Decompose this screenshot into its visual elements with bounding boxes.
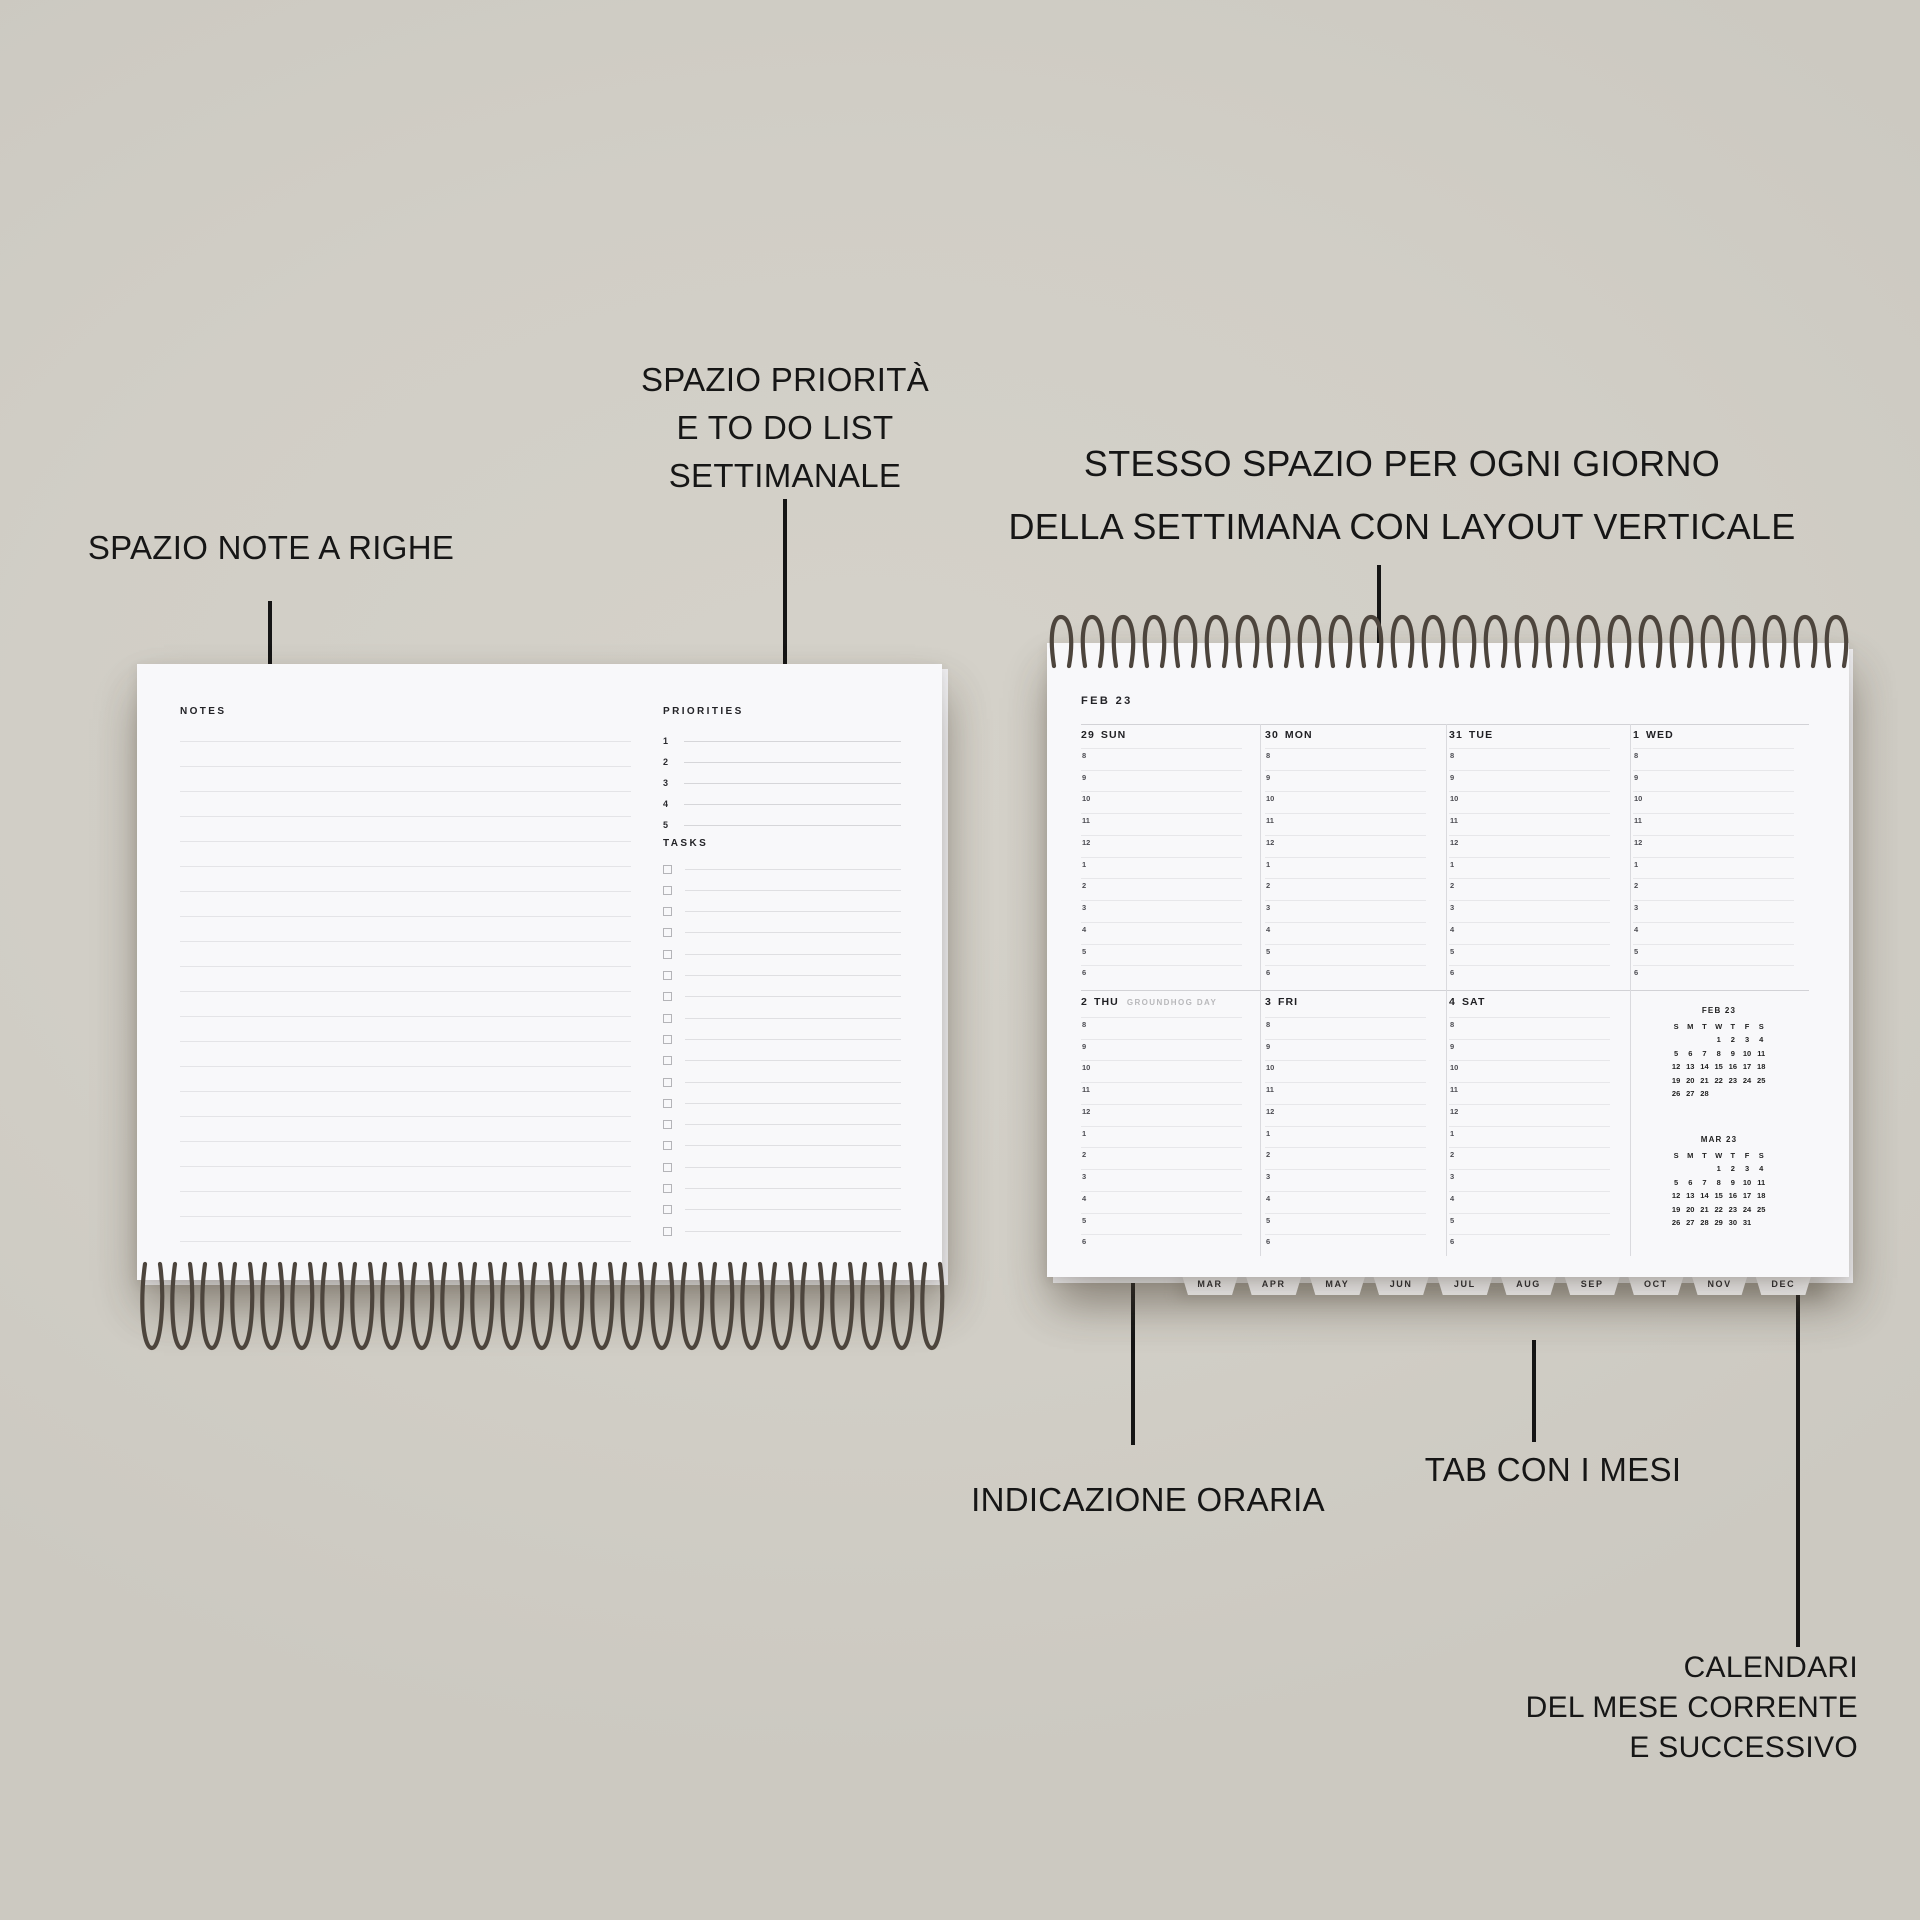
hour-cell: 3 — [1449, 900, 1610, 922]
annotation-calendars: CALENDARI DEL MESE CORRENTE E SUCCESSIVO — [1526, 1648, 1858, 1768]
mini-calendar-day: 5 — [1669, 1047, 1683, 1060]
mini-calendar-day — [1754, 1216, 1768, 1229]
mini-calendar-title: FEB 23 — [1669, 1006, 1769, 1015]
mini-calendar-day: 17 — [1740, 1060, 1754, 1073]
note-line — [180, 1016, 631, 1017]
day-header: 3FRI — [1265, 996, 1298, 1008]
hour-cell: 12 — [1265, 835, 1426, 857]
hour-cell: 3 — [1449, 1169, 1610, 1191]
notepad-page: NOTES PRIORITIES 12345 TASKS — [137, 664, 942, 1280]
mini-calendar-dow: S — [1669, 1149, 1683, 1162]
annotation-priorities-line2: E TO DO LIST — [641, 404, 929, 452]
note-line — [180, 1241, 631, 1242]
hour-cell: 9 — [1265, 1039, 1426, 1061]
hour-cell: 4 — [1081, 922, 1242, 944]
day-name: SAT — [1462, 996, 1486, 1008]
mini-calendar-grid: SMTWTFS123456789101112131415161718192021… — [1669, 1020, 1769, 1100]
task-line — [685, 911, 901, 912]
task-row — [663, 863, 901, 875]
hour-cell: 1 — [1265, 857, 1426, 879]
mini-calendar-day: 27 — [1683, 1216, 1697, 1229]
hour-cell: 3 — [1265, 1169, 1426, 1191]
mini-calendar-day: 9 — [1726, 1047, 1740, 1060]
task-line — [685, 1060, 901, 1061]
hour-cell: 8 — [1633, 748, 1794, 770]
hour-cell: 3 — [1633, 900, 1794, 922]
mini-calendar-dow: T — [1697, 1020, 1711, 1033]
hour-cell: 8 — [1081, 1017, 1242, 1039]
hour-cell: 6 — [1449, 1234, 1610, 1256]
annotation-vertical-layout-line2: DELLA SETTIMANA CON LAYOUT VERTICALE — [1008, 495, 1795, 558]
mini-calendar-day: 11 — [1754, 1047, 1768, 1060]
task-checkbox — [663, 1035, 672, 1044]
mini-calendar-day — [1683, 1162, 1697, 1175]
mini-calendar-day — [1754, 1087, 1768, 1100]
task-checkbox — [663, 1056, 672, 1065]
note-line — [180, 941, 631, 942]
hour-cell: 9 — [1449, 770, 1610, 792]
note-line — [180, 1116, 631, 1117]
note-line — [180, 1041, 631, 1042]
hour-cell: 12 — [1633, 835, 1794, 857]
mini-calendar-day: 4 — [1754, 1162, 1768, 1175]
task-row — [663, 1225, 901, 1237]
note-line — [180, 841, 631, 842]
mini-calendar-dow: M — [1683, 1020, 1697, 1033]
hour-cell: 2 — [1633, 878, 1794, 900]
mini-calendar-day: 28 — [1697, 1216, 1711, 1229]
mini-calendar-day: 24 — [1740, 1203, 1754, 1216]
mini-calendar-day: 12 — [1669, 1189, 1683, 1202]
column-divider-3 — [1630, 724, 1631, 1256]
hour-cell: 2 — [1265, 878, 1426, 900]
hour-cell: 4 — [1265, 922, 1426, 944]
hour-cell: 8 — [1449, 748, 1610, 770]
hour-grid: 89101112123456 — [1633, 748, 1794, 987]
day-header: 1WED — [1633, 729, 1674, 741]
mini-calendar-day — [1726, 1087, 1740, 1100]
hour-cell: 5 — [1081, 1213, 1242, 1235]
mini-calendar-day: 25 — [1754, 1203, 1768, 1216]
day-header: 2THUGROUNDHOG DAY — [1081, 996, 1217, 1008]
hour-cell: 2 — [1081, 878, 1242, 900]
hour-cell: 1 — [1449, 857, 1610, 879]
task-checkbox — [663, 971, 672, 980]
task-row — [663, 970, 901, 982]
mini-calendar-dow: S — [1669, 1020, 1683, 1033]
annotation-calendars-line1: CALENDARI — [1526, 1648, 1858, 1688]
mini-calendar-dow: F — [1740, 1020, 1754, 1033]
mini-calendar-day: 26 — [1669, 1087, 1683, 1100]
annotation-vertical-layout: STESSO SPAZIO PER OGNI GIORNO DELLA SETT… — [1008, 432, 1795, 558]
task-line — [685, 1231, 901, 1232]
hour-cell: 5 — [1265, 944, 1426, 966]
day-name: THU — [1094, 996, 1119, 1008]
task-checkbox — [663, 928, 672, 937]
note-line — [180, 966, 631, 967]
mini-calendar-day: 8 — [1712, 1176, 1726, 1189]
hour-grid: 89101112123456 — [1265, 1017, 1426, 1256]
mini-calendar-day: 17 — [1740, 1189, 1754, 1202]
task-row — [663, 991, 901, 1003]
task-checkbox — [663, 992, 672, 1001]
mini-calendar-dow: T — [1726, 1149, 1740, 1162]
hour-cell: 10 — [1265, 1060, 1426, 1082]
mini-calendar-day: 18 — [1754, 1189, 1768, 1202]
hour-cell: 10 — [1081, 791, 1242, 813]
mini-calendar-day: 11 — [1754, 1176, 1768, 1189]
mini-calendar-day: 14 — [1697, 1189, 1711, 1202]
day-number: 29 — [1081, 729, 1095, 741]
column-divider-1 — [1260, 724, 1261, 1256]
task-checkbox — [663, 1227, 672, 1236]
day-header: 4SAT — [1449, 996, 1485, 1008]
hour-cell: 6 — [1081, 1234, 1242, 1256]
mini-calendar-day: 20 — [1683, 1203, 1697, 1216]
hour-cell: 12 — [1081, 1104, 1242, 1126]
hour-cell: 10 — [1449, 1060, 1610, 1082]
note-line — [180, 741, 631, 742]
hour-grid: 89101112123456 — [1081, 1017, 1242, 1256]
mini-calendar-day: 23 — [1726, 1074, 1740, 1087]
annotation-priorities-line1: SPAZIO PRIORITÀ — [641, 356, 929, 404]
hour-cell: 5 — [1633, 944, 1794, 966]
task-line — [685, 869, 901, 870]
mini-calendar-day: 8 — [1712, 1047, 1726, 1060]
mini-calendar-day: 14 — [1697, 1060, 1711, 1073]
mini-calendar-day: 20 — [1683, 1074, 1697, 1087]
notes-lines — [180, 741, 631, 1261]
mini-calendar-day: 2 — [1726, 1033, 1740, 1046]
note-line — [180, 1091, 631, 1092]
task-row — [663, 1140, 901, 1152]
day-name: SUN — [1101, 729, 1126, 741]
task-checkbox — [663, 1099, 672, 1108]
mini-calendar-day: 18 — [1754, 1060, 1768, 1073]
hour-cell: 4 — [1633, 922, 1794, 944]
task-checkbox — [663, 1078, 672, 1087]
note-line — [180, 891, 631, 892]
hour-cell: 11 — [1081, 813, 1242, 835]
hour-cell: 4 — [1449, 922, 1610, 944]
task-line — [685, 1082, 901, 1083]
mini-calendar-day: 22 — [1712, 1203, 1726, 1216]
annotation-calendars-line2: DEL MESE CORRENTE — [1526, 1688, 1858, 1728]
hour-cell: 5 — [1081, 944, 1242, 966]
note-line — [180, 1066, 631, 1067]
mini-calendar-day: 10 — [1740, 1176, 1754, 1189]
note-line — [180, 1191, 631, 1192]
task-row — [663, 1183, 901, 1195]
hour-cell: 5 — [1265, 1213, 1426, 1235]
task-checkbox — [663, 1205, 672, 1214]
priority-number: 1 — [663, 736, 684, 746]
hour-cell: 1 — [1081, 1126, 1242, 1148]
hour-cell: 8 — [1449, 1017, 1610, 1039]
mini-calendar-dow: W — [1712, 1149, 1726, 1162]
hour-cell: 4 — [1265, 1191, 1426, 1213]
hour-cell: 8 — [1081, 748, 1242, 770]
mini-calendar-day: 5 — [1669, 1176, 1683, 1189]
task-row — [663, 927, 901, 939]
mini-calendar-day — [1697, 1033, 1711, 1046]
note-line — [180, 791, 631, 792]
priority-number: 5 — [663, 820, 684, 830]
task-checkbox — [663, 1141, 672, 1150]
annotation-tabs: TAB CON I MESI — [1425, 1446, 1682, 1494]
mini-calendar-day: 19 — [1669, 1203, 1683, 1216]
day-header: 29SUN — [1081, 729, 1126, 741]
task-checkbox — [663, 1120, 672, 1129]
hour-cell: 1 — [1265, 1126, 1426, 1148]
note-line — [180, 766, 631, 767]
annotation-priorities: SPAZIO PRIORITÀ E TO DO LIST SETTIMANALE — [641, 356, 929, 500]
hour-cell: 2 — [1265, 1147, 1426, 1169]
mini-calendar-day: 21 — [1697, 1203, 1711, 1216]
task-line — [685, 1124, 901, 1125]
hour-cell: 11 — [1265, 1082, 1426, 1104]
mini-calendar-day: 7 — [1697, 1176, 1711, 1189]
day-name: FRI — [1278, 996, 1298, 1008]
hour-cell: 3 — [1081, 900, 1242, 922]
task-checkbox — [663, 1014, 672, 1023]
mini-calendar-day: 15 — [1712, 1060, 1726, 1073]
hour-cell: 6 — [1081, 965, 1242, 987]
task-row — [663, 1076, 901, 1088]
mini-calendar-day: 4 — [1754, 1033, 1768, 1046]
priority-line — [684, 741, 901, 742]
tasks-label: TASKS — [663, 838, 708, 849]
task-row — [663, 906, 901, 918]
hour-cell: 9 — [1633, 770, 1794, 792]
hour-cell: 5 — [1449, 1213, 1610, 1235]
mini-calendar-dow: T — [1726, 1020, 1740, 1033]
mini-calendar-day — [1683, 1033, 1697, 1046]
task-row — [663, 1033, 901, 1045]
day-header: 31TUE — [1449, 729, 1493, 741]
mini-calendar-day — [1697, 1162, 1711, 1175]
mini-calendar-dow: M — [1683, 1149, 1697, 1162]
hour-cell: 2 — [1449, 1147, 1610, 1169]
note-line — [180, 1216, 631, 1217]
hour-cell: 1 — [1081, 857, 1242, 879]
hour-cell: 12 — [1449, 1104, 1610, 1126]
hour-cell: 9 — [1081, 1039, 1242, 1061]
mini-calendar-day: 19 — [1669, 1074, 1683, 1087]
planner-title: FEB 23 — [1081, 695, 1133, 707]
hour-grid: 89101112123456 — [1265, 748, 1426, 987]
mini-calendar-day: 31 — [1740, 1216, 1754, 1229]
note-line — [180, 916, 631, 917]
mini-calendar-day: 9 — [1726, 1176, 1740, 1189]
task-line — [685, 1209, 901, 1210]
mini-calendar-day: 13 — [1683, 1060, 1697, 1073]
hour-cell: 9 — [1081, 770, 1242, 792]
mini-calendar-day: 30 — [1726, 1216, 1740, 1229]
hour-cell: 6 — [1265, 965, 1426, 987]
note-line — [180, 816, 631, 817]
hour-grid: 89101112123456 — [1449, 1017, 1610, 1256]
task-row — [663, 1097, 901, 1109]
priority-number: 2 — [663, 757, 684, 767]
task-checkbox — [663, 907, 672, 916]
day-number: 31 — [1449, 729, 1463, 741]
priorities-label: PRIORITIES — [663, 706, 744, 717]
hour-cell: 9 — [1449, 1039, 1610, 1061]
day-name: MON — [1285, 729, 1313, 741]
hour-cell: 10 — [1449, 791, 1610, 813]
mini-calendar-day: 22 — [1712, 1074, 1726, 1087]
note-line — [180, 1166, 631, 1167]
mini-calendar-dow: T — [1697, 1149, 1711, 1162]
mini-calendar-dow: F — [1740, 1149, 1754, 1162]
day-number: 1 — [1633, 729, 1640, 741]
day-number: 2 — [1081, 996, 1088, 1008]
mini-calendar-day: 6 — [1683, 1176, 1697, 1189]
mini-calendar-day — [1669, 1033, 1683, 1046]
hour-grid: 89101112123456 — [1081, 748, 1242, 987]
priority-row: 3 — [663, 777, 901, 789]
hour-cell: 2 — [1449, 878, 1610, 900]
day-header: 30MON — [1265, 729, 1313, 741]
mini-calendar-day: 28 — [1697, 1087, 1711, 1100]
day-number: 30 — [1265, 729, 1279, 741]
hour-cell: 8 — [1265, 1017, 1426, 1039]
task-line — [685, 954, 901, 955]
hour-cell: 1 — [1633, 857, 1794, 879]
hour-cell: 9 — [1265, 770, 1426, 792]
hour-cell: 11 — [1081, 1082, 1242, 1104]
hour-cell: 10 — [1265, 791, 1426, 813]
mini-calendar-dow: W — [1712, 1020, 1726, 1033]
day-number: 4 — [1449, 996, 1456, 1008]
annotation-hours: INDICAZIONE ORARIA — [971, 1476, 1325, 1524]
mini-calendar-dow: S — [1754, 1020, 1768, 1033]
priority-line — [684, 783, 901, 784]
priority-row: 5 — [663, 819, 901, 831]
priority-line — [684, 804, 901, 805]
hour-cell: 6 — [1265, 1234, 1426, 1256]
hour-cell: 2 — [1081, 1147, 1242, 1169]
mini-calendar-day: 29 — [1712, 1216, 1726, 1229]
mini-calendar-day: 24 — [1740, 1074, 1754, 1087]
day-holiday-note: GROUNDHOG DAY — [1127, 998, 1217, 1007]
priority-line — [684, 825, 901, 826]
mini-calendar-day: 15 — [1712, 1189, 1726, 1202]
hour-cell: 11 — [1449, 813, 1610, 835]
planner-page: FEB 23 29SUN8910111212345630MON891011121… — [1047, 643, 1849, 1277]
task-row — [663, 1012, 901, 1024]
task-line — [685, 890, 901, 891]
hour-grid: 89101112123456 — [1449, 748, 1610, 987]
hour-cell: 12 — [1265, 1104, 1426, 1126]
mini-calendar-day: 21 — [1697, 1074, 1711, 1087]
task-row — [663, 948, 901, 960]
mini-calendar-day: 1 — [1712, 1033, 1726, 1046]
task-line — [685, 1167, 901, 1168]
task-checkbox — [663, 1163, 672, 1172]
mini-calendar-current: FEB 23SMTWTFS123456789101112131415161718… — [1669, 1006, 1769, 1100]
hour-cell: 12 — [1449, 835, 1610, 857]
mini-calendar-day: 27 — [1683, 1087, 1697, 1100]
mini-calendar-day: 1 — [1712, 1162, 1726, 1175]
mini-calendar-day: 13 — [1683, 1189, 1697, 1202]
hour-cell: 6 — [1449, 965, 1610, 987]
hour-cell: 1 — [1449, 1126, 1610, 1148]
hour-cell: 3 — [1265, 900, 1426, 922]
product-diagram: SPAZIO NOTE A RIGHE SPAZIO PRIORITÀ E TO… — [0, 0, 1920, 1920]
mini-calendar-day: 12 — [1669, 1060, 1683, 1073]
priority-number: 4 — [663, 799, 684, 809]
priority-row: 1 — [663, 735, 901, 747]
column-divider-2 — [1446, 724, 1447, 1256]
hour-cell: 10 — [1633, 791, 1794, 813]
mini-calendar-next: MAR 23SMTWTFS123456789101112131415161718… — [1669, 1135, 1769, 1229]
task-row — [663, 1204, 901, 1216]
mini-calendar-day — [1740, 1087, 1754, 1100]
hour-cell: 12 — [1081, 835, 1242, 857]
task-row — [663, 1055, 901, 1067]
note-line — [180, 1141, 631, 1142]
hour-cell: 11 — [1449, 1082, 1610, 1104]
priority-row: 4 — [663, 798, 901, 810]
task-checkbox — [663, 865, 672, 874]
task-checkbox — [663, 1184, 672, 1193]
hour-cell: 11 — [1265, 813, 1426, 835]
task-line — [685, 1018, 901, 1019]
mini-calendar-day: 7 — [1697, 1047, 1711, 1060]
pointer-line-tabs — [1532, 1340, 1536, 1442]
task-row — [663, 1119, 901, 1131]
annotation-notes: SPAZIO NOTE A RIGHE — [88, 524, 454, 572]
note-line — [180, 866, 631, 867]
task-row — [663, 1161, 901, 1173]
mini-calendar-day: 16 — [1726, 1060, 1740, 1073]
annotation-calendars-line3: E SUCCESSIVO — [1526, 1728, 1858, 1768]
task-line — [685, 932, 901, 933]
annotation-priorities-line3: SETTIMANALE — [641, 452, 929, 500]
task-line — [685, 1103, 901, 1104]
mini-calendar-day: 26 — [1669, 1216, 1683, 1229]
day-number: 3 — [1265, 996, 1272, 1008]
task-row — [663, 884, 901, 896]
task-line — [685, 1039, 901, 1040]
mini-calendar-day: 3 — [1740, 1162, 1754, 1175]
mini-calendar-day: 3 — [1740, 1033, 1754, 1046]
task-line — [685, 1145, 901, 1146]
mini-calendar-grid: SMTWTFS123456789101112131415161718192021… — [1669, 1149, 1769, 1229]
note-line — [180, 991, 631, 992]
mini-calendar-day: 6 — [1683, 1047, 1697, 1060]
mini-calendar-day: 25 — [1754, 1074, 1768, 1087]
annotation-vertical-layout-line1: STESSO SPAZIO PER OGNI GIORNO — [1008, 432, 1795, 495]
day-name: TUE — [1469, 729, 1493, 741]
hour-cell: 8 — [1265, 748, 1426, 770]
hour-cell: 5 — [1449, 944, 1610, 966]
task-line — [685, 975, 901, 976]
priority-line — [684, 762, 901, 763]
hour-cell: 4 — [1449, 1191, 1610, 1213]
mini-calendar-title: MAR 23 — [1669, 1135, 1769, 1144]
task-line — [685, 996, 901, 997]
week1-header-rule — [1081, 724, 1809, 725]
hour-cell: 10 — [1081, 1060, 1242, 1082]
mini-calendar-dow: S — [1754, 1149, 1768, 1162]
day-name: WED — [1646, 729, 1674, 741]
hour-cell: 4 — [1081, 1191, 1242, 1213]
mini-calendar-day: 2 — [1726, 1162, 1740, 1175]
mini-calendar-day — [1712, 1087, 1726, 1100]
